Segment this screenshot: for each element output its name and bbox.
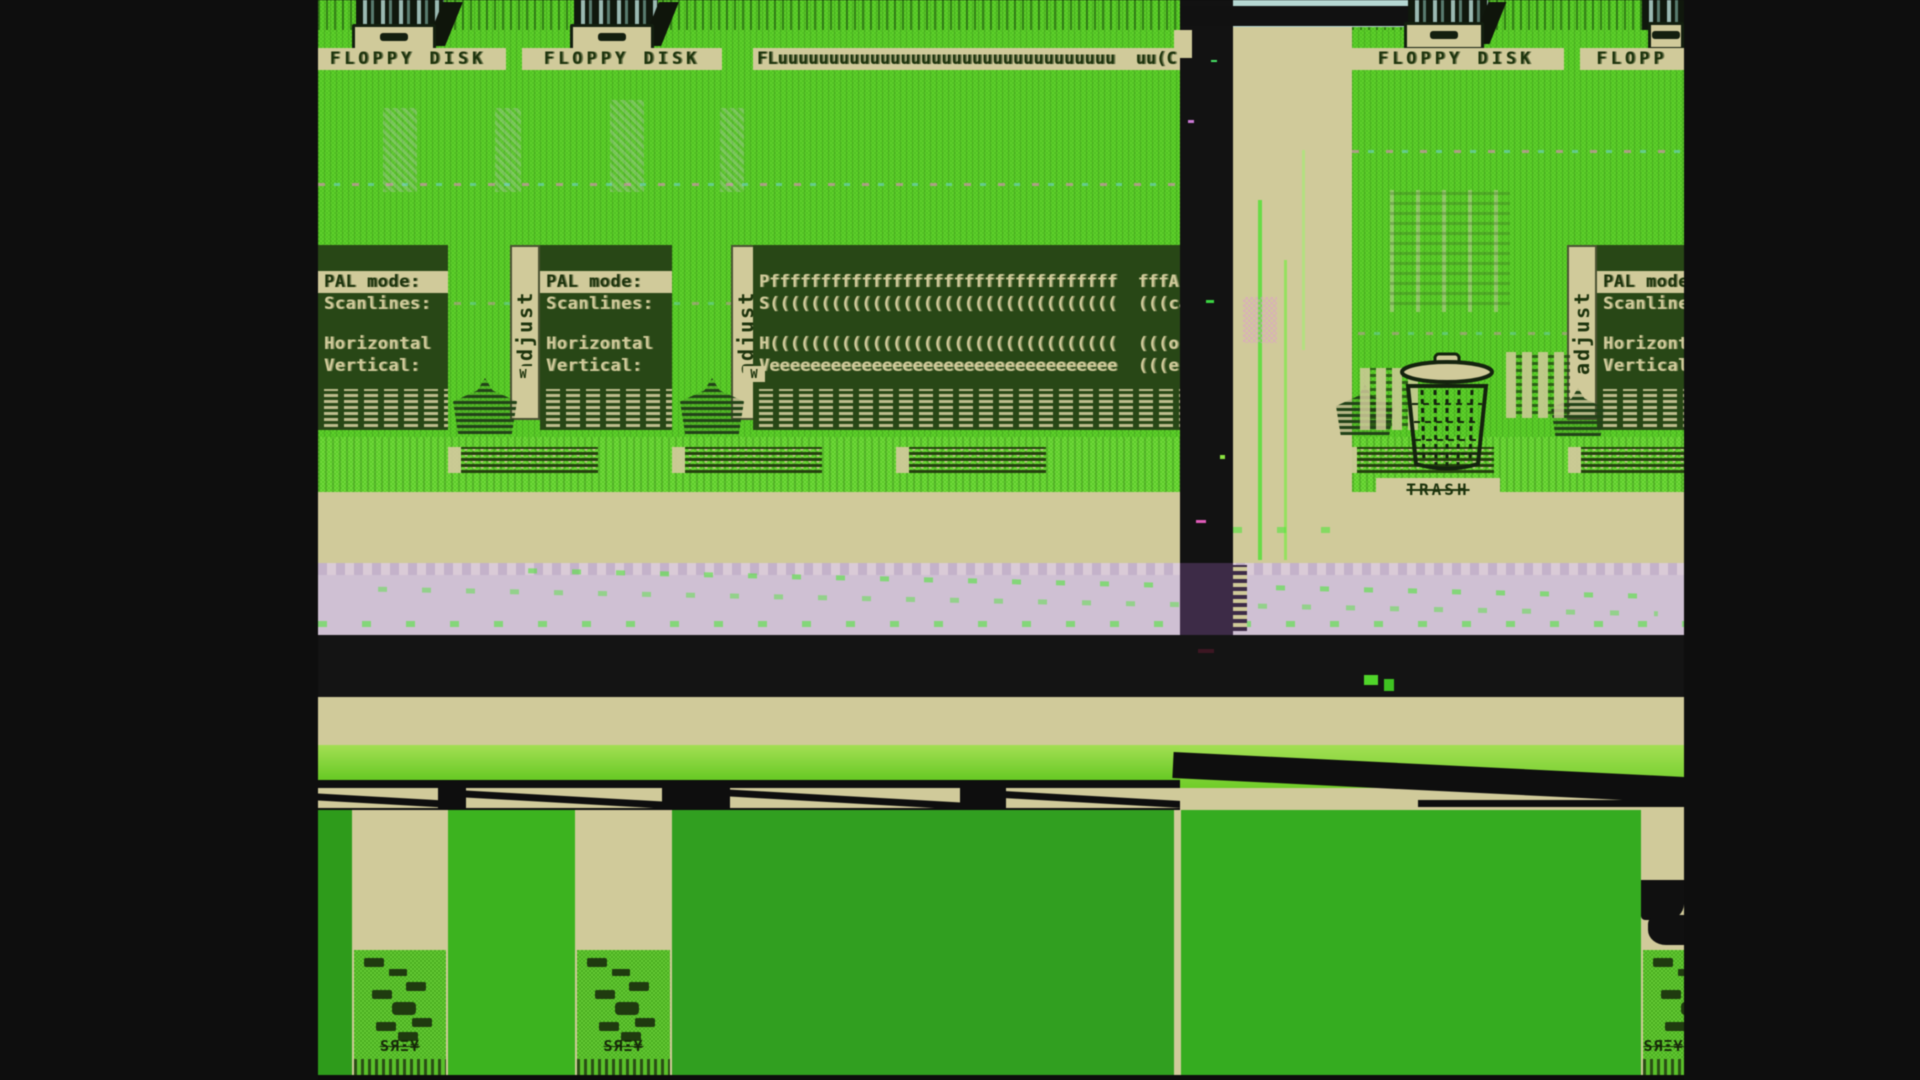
bottom-green-column [448,810,575,1075]
adjust-tab[interactable]: adjust [510,245,540,420]
floppy-disk-label[interactable]: FLOPPY DISK [318,48,506,70]
dark-purple-block [1180,563,1233,635]
trash-glitch-dashes [1506,352,1570,418]
glitched-desktop-icon[interactable]: SЯΞ¥ [577,950,670,1075]
bottom-green-column [318,810,352,1075]
noise-pixels [1188,120,1194,123]
vertical-row: Vertical: [318,355,448,377]
drawer-handle [598,33,626,41]
glitch-checkbox: W [743,366,765,382]
trash-label[interactable]: TRASH [1376,478,1500,502]
panel-dither-fringe [1597,389,1684,430]
top-black-bar [1180,6,1415,26]
ghost-streak [383,108,417,192]
black-blobs [1648,915,1684,945]
adjust-tab[interactable]: adjust [1567,245,1597,420]
ghost-streak [495,108,521,192]
tan-wedge [466,788,662,808]
vertical-row: Vertical: [1597,355,1684,377]
trash-icon[interactable] [1388,348,1506,476]
vertical-row-smeared: Veeeeeeeeeeeeeeeeeeeeeeeeeeeeeeeeee (((e… [753,355,1180,377]
wedge-band-left [318,780,1180,810]
pal-mode-row-smeared: Pffffffffffffffffffffffffffffffffff fffA… [753,271,1180,293]
ghost-streak [610,100,644,192]
wedge-band-right-line [1418,800,1684,807]
glitched-desktop-screen: SЯΞ¥ SЯΞ¥ SЯΞ¥ [0,0,1920,1080]
noise-pixels [1198,649,1214,653]
vertical-row: Vertical: [540,355,672,377]
drawer-handle [1430,31,1458,39]
panel-dither-fringe [318,389,448,430]
glitch-band-tan [318,492,1684,563]
glitch-comb-glyph [1568,447,1684,473]
scanlines-row: Scanlines: [1597,293,1684,315]
noise-pixels [1206,300,1214,303]
desktop: SЯΞ¥ SЯΞ¥ SЯΞ¥ [318,0,1684,1080]
bottom-black-bar [318,1075,1684,1080]
adjust-panel-clipped: PAL mode: Scanlines: Horizontal Vertical… [1597,245,1684,430]
black-blobs [1641,880,1684,920]
glitch-black-strip [1180,0,1233,563]
noise-pixels [1384,679,1394,691]
lavender-comb-texture [318,563,1684,575]
pink-noise-cluster [1243,297,1277,343]
scanline-glitch-row [318,183,1180,186]
bottom-green-rect [672,810,1174,1075]
noise-pixels [1364,675,1378,685]
bottom-green-rect-right [1181,810,1641,1075]
noise-pixels [1220,455,1225,459]
glitch-band-black [318,635,1684,697]
green-glitch-line [1258,200,1262,560]
floppy-drawer-icon[interactable] [1404,22,1484,50]
green-speck-row [1233,527,1352,533]
adjust-panel-2: PAL mode: Scanlines: Horizontal Vertical… [540,245,672,430]
horizontal-row: Horizontal [540,333,672,355]
adjust-panel-1: PAL mode: Scanlines: Horizontal Vertical… [318,245,448,430]
scanline-glitch-row [1352,150,1684,153]
bottom-tan-gap [1174,810,1181,1075]
glitch-tan-column [1233,27,1352,563]
glitched-desktop-icon[interactable]: SЯΞ¥ [1643,950,1684,1075]
glitch-band-tan-2 [318,697,1684,745]
glitched-icon-label: SЯΞ¥ [1643,1037,1684,1055]
ghost-streak [720,108,744,192]
panel-dither-fringe [753,389,1180,430]
glitch-band-lavender [318,563,1684,635]
horizontal-row-smeared: H(((((((((((((((((((((((((((((((((( (((o… [753,333,1180,355]
floppy-disk-label-clipped[interactable]: FLOPP [1580,48,1684,70]
glitch-checkbox: W [512,366,534,382]
drawer-handle [380,33,408,41]
glitch-comb-glyph [672,447,822,473]
panel-dither-fringe [540,389,672,430]
drawer-handle [1652,31,1680,39]
floppy-disk-label[interactable]: FLOPPY DISK [1348,48,1564,70]
adjust-panel-smeared: Pffffffffffffffffffffffffffffffffff fffA… [753,245,1180,430]
pal-mode-row: PAL mode: [1597,271,1684,293]
tan-wedge [318,788,438,808]
floppy-drawer-icon[interactable] [1648,22,1684,50]
green-speck-row [318,621,1684,627]
tan-wedge [730,788,960,808]
green-glitch-line [1284,260,1287,560]
purple-jagged-edge [1233,565,1247,631]
pal-mode-row: PAL mode: [540,271,672,293]
glitched-desktop-icon[interactable]: SЯΞ¥ [354,950,446,1075]
scanlines-row: Scanlines: [318,293,448,315]
noise-pixels [1196,520,1206,523]
horizontal-row: Horizontal [318,333,448,355]
noise-pixels [1211,60,1217,62]
glitched-icon-label: SЯΞ¥ [354,1037,446,1055]
glitch-comb-glyph [896,447,1046,473]
scanlines-row-smeared: S(((((((((((((((((((((((((((((((((( (((c… [753,293,1180,315]
pal-mode-row: PAL mode: [318,271,448,293]
tan-wedge [1006,788,1180,808]
floppy-disk-label[interactable]: FLOPPY DISK [522,48,722,70]
horizontal-row: Horizontal [1597,333,1684,355]
glitched-icon-label: SЯΞ¥ [577,1037,670,1055]
ghost-fence [1390,190,1510,312]
green-glitch-line [1302,150,1305,350]
glitch-comb-glyph [448,447,598,473]
floppy-disk-label-smeared[interactable]: FLuuuuuuuuuuuuuuuuuuuuuuuuuuuuuuuuu uu(C [753,48,1180,70]
scanline-glitch-row [1358,332,1598,335]
scanlines-row: Scanlines: [540,293,672,315]
